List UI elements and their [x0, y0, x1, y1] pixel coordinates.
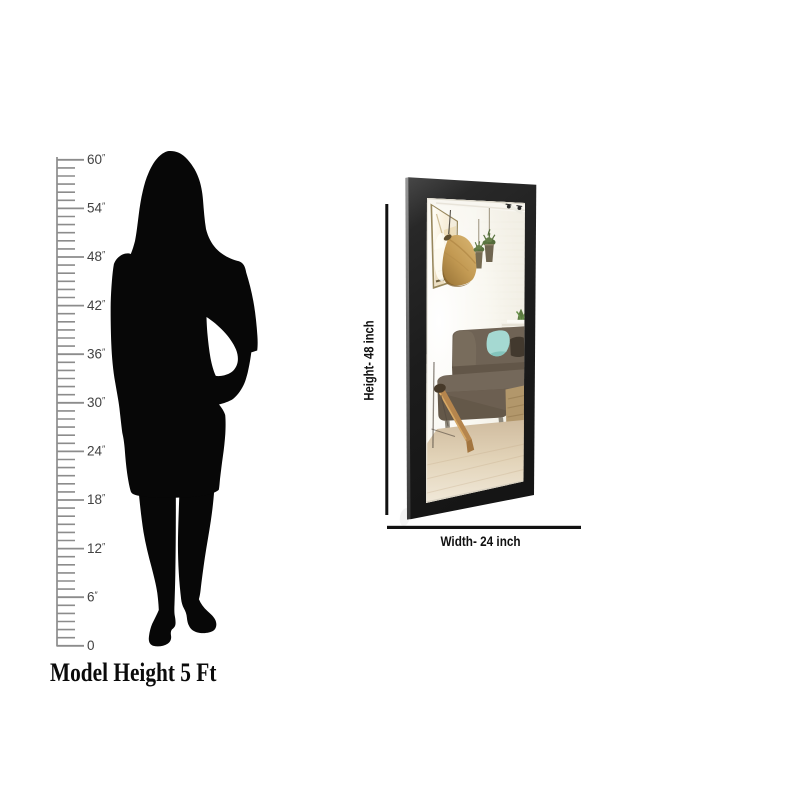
svg-text:60″: 60″ [87, 152, 106, 167]
svg-text:0: 0 [87, 638, 95, 653]
svg-text:Height- 48 inch: Height- 48 inch [361, 320, 376, 400]
svg-text:6″: 6″ [87, 589, 99, 604]
svg-text:Width- 24 inch: Width- 24 inch [440, 533, 520, 549]
svg-text:30″: 30″ [87, 395, 106, 410]
svg-text:54″: 54″ [87, 201, 106, 216]
svg-text:18″: 18″ [87, 492, 106, 507]
svg-text:24″: 24″ [87, 444, 106, 459]
svg-text:Model Height 5 Ft: Model Height 5 Ft [50, 659, 216, 688]
svg-text:36″: 36″ [87, 346, 106, 361]
svg-text:42″: 42″ [87, 298, 106, 313]
svg-text:48″: 48″ [87, 249, 106, 264]
svg-text:12″: 12″ [87, 541, 106, 556]
